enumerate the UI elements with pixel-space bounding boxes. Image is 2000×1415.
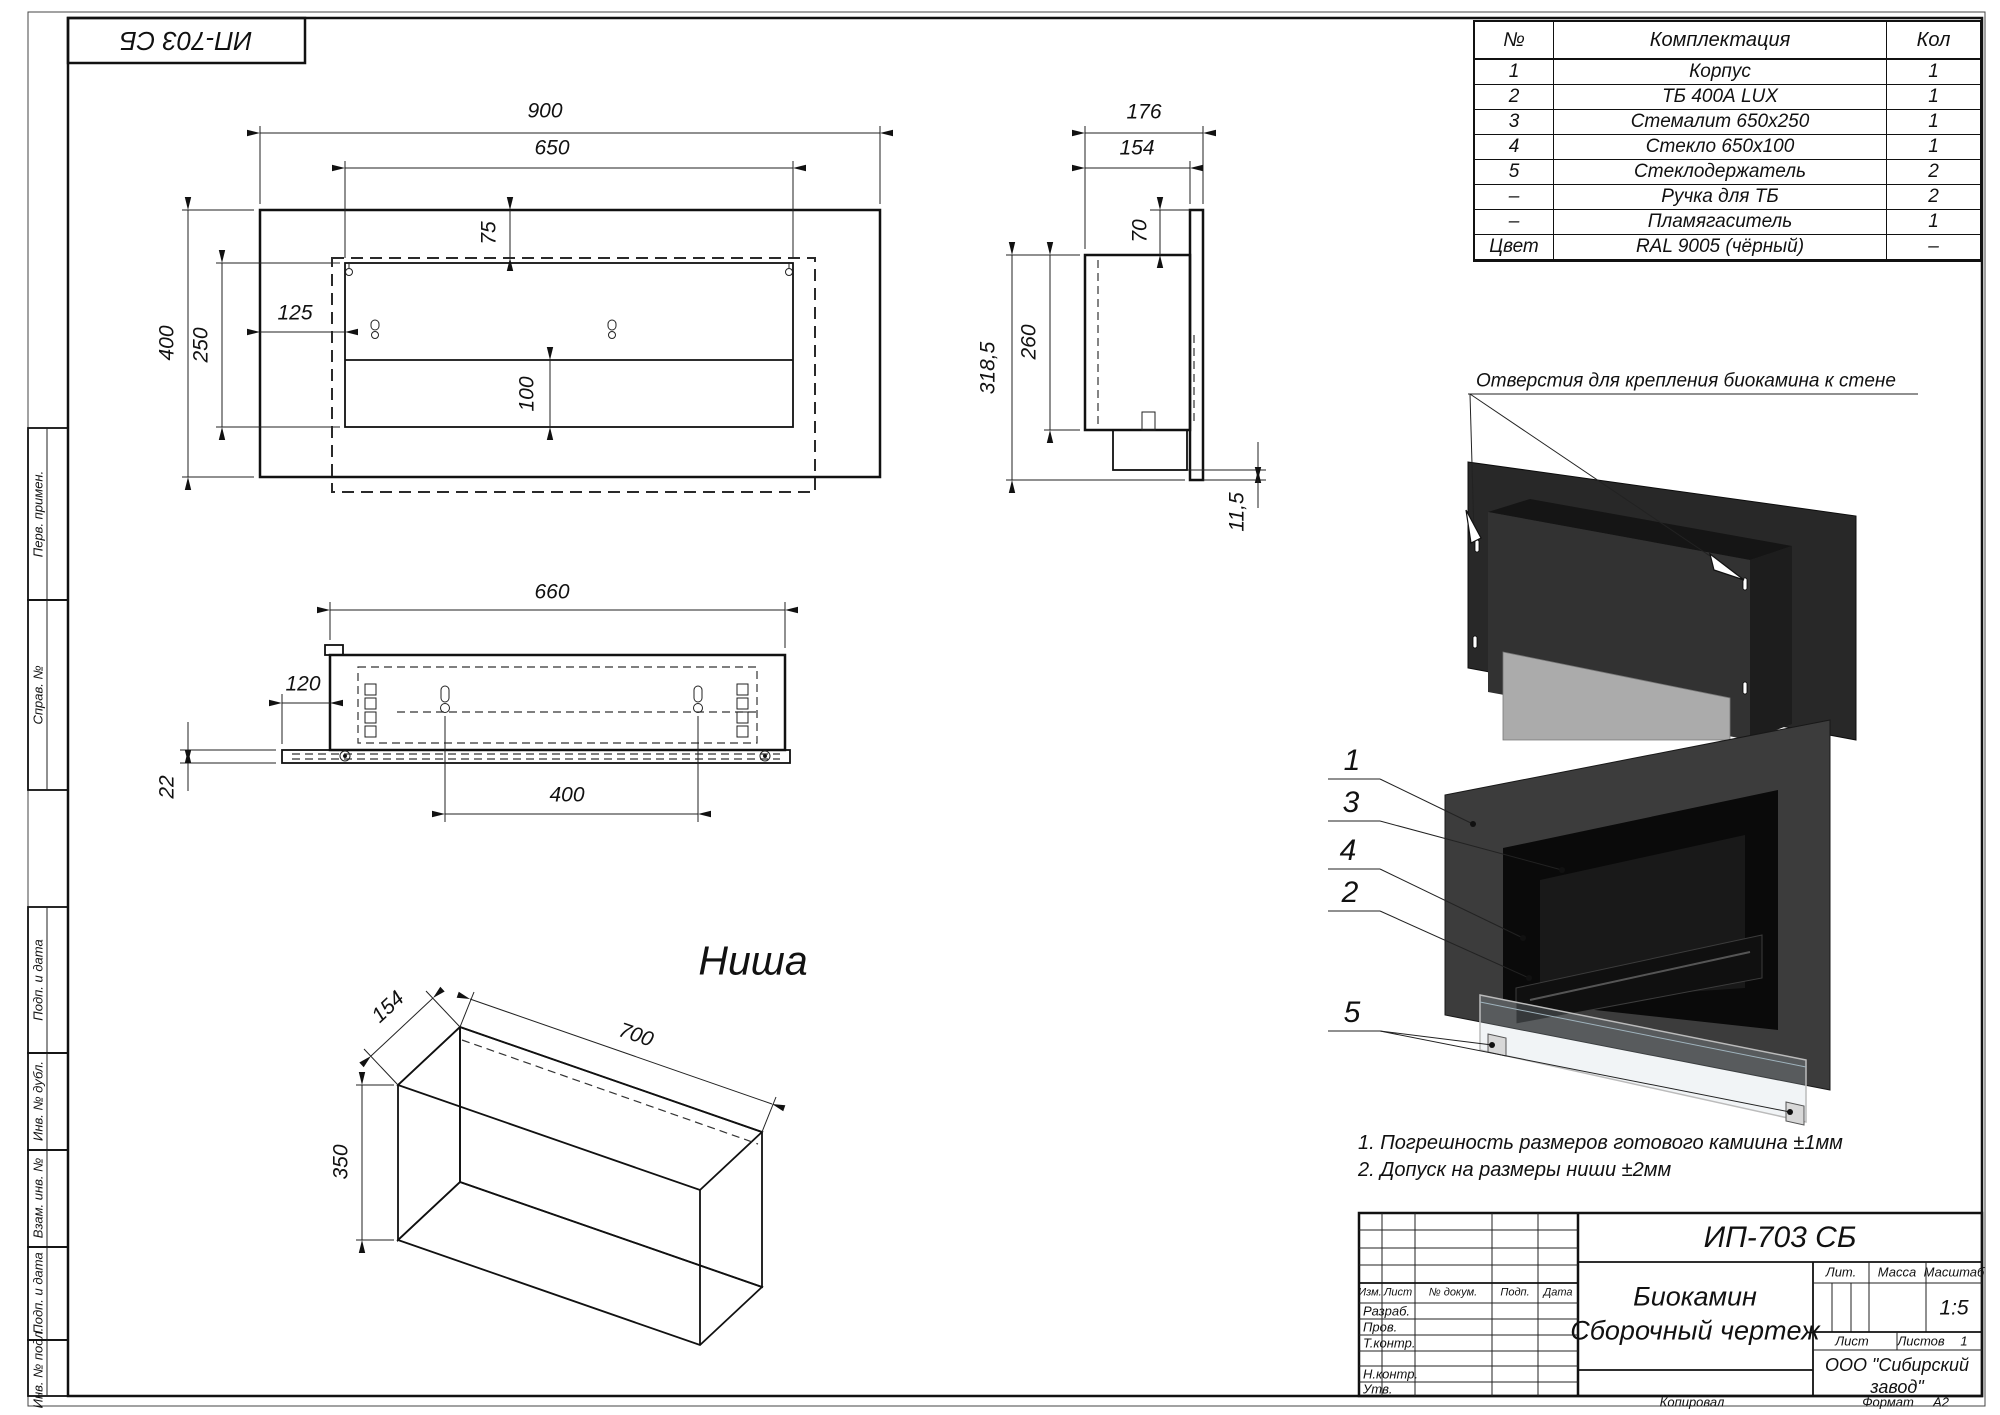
title-block-lit-label: Лит. bbox=[1826, 1266, 1856, 1279]
table-cell: 2 bbox=[1887, 185, 1980, 210]
callout-4: 4 bbox=[1340, 836, 1357, 866]
note-tolerance-niche: 2. Допуск на размеры ниши ±2мм bbox=[1358, 1157, 1843, 1184]
render-rear-view bbox=[1466, 394, 1918, 740]
margin-label-inv-dubl: Инв. № дубл. bbox=[32, 1061, 45, 1141]
table-cell: Стемалит 650х250 bbox=[1554, 110, 1887, 135]
callout-3: 3 bbox=[1343, 788, 1360, 818]
table-cell: 2 bbox=[1887, 160, 1980, 185]
stamp-format-value: А2 bbox=[1933, 1396, 1949, 1409]
dim-side-top-offset: 70 bbox=[1130, 219, 1151, 242]
niche-view bbox=[356, 991, 776, 1345]
stamp-format-label: Формат bbox=[1862, 1396, 1914, 1409]
dim-side-depth: 176 bbox=[1126, 102, 1161, 123]
margin-label-inv-podl: Инв. № подл. bbox=[32, 1328, 45, 1409]
table-cell: Корпус bbox=[1554, 60, 1887, 85]
title-block-scale-label: Масштаб bbox=[1924, 1266, 1985, 1279]
title-block-col-data: Дата bbox=[1543, 1288, 1572, 1299]
table-cell: 5 bbox=[1475, 160, 1554, 185]
table-cell: – bbox=[1475, 210, 1554, 235]
title-block-sheet-label: Лист bbox=[1835, 1335, 1868, 1348]
title-block-sheets-value: 1 bbox=[1960, 1335, 1967, 1348]
stamp-copied: Копировал bbox=[1660, 1396, 1725, 1409]
table-cell: 1 bbox=[1887, 110, 1980, 135]
dim-bottom-plate-thickness: 22 bbox=[157, 775, 178, 798]
title-block-row-prov: Пров. bbox=[1363, 1321, 1397, 1334]
table-cell: – bbox=[1475, 185, 1554, 210]
table-cell: Стеклодержатель bbox=[1554, 160, 1887, 185]
margin-label-podp-data-2: Подп. и дата bbox=[32, 1252, 45, 1333]
table-cell: Ручка для ТБ bbox=[1554, 185, 1887, 210]
dim-front-height: 400 bbox=[157, 325, 178, 360]
table-cell: Цвет bbox=[1475, 235, 1554, 260]
title-block-row-utv: Утв. bbox=[1363, 1383, 1393, 1396]
niche-title: Ниша bbox=[698, 941, 807, 982]
table-cell: – bbox=[1887, 235, 1980, 260]
bottom-view bbox=[180, 602, 790, 822]
drawing-sheet: .thick{stroke:#111;stroke-width:2.5;fill… bbox=[0, 0, 2000, 1415]
table-cell: 1 bbox=[1887, 85, 1980, 110]
dim-side-bottom-offset: 11,5 bbox=[1227, 492, 1248, 531]
title-block-doc-type: Сборочный чертеж bbox=[1570, 1318, 1820, 1345]
title-block-doc-number: ИП-703 СБ bbox=[1704, 1223, 1857, 1253]
dim-side-total-height: 318,5 bbox=[978, 342, 999, 395]
title-block-scale-value: 1:5 bbox=[1939, 1298, 1968, 1319]
callout-1: 1 bbox=[1344, 746, 1361, 776]
dim-front-glass-height: 100 bbox=[517, 376, 538, 411]
title-block-sheets-label: Листов bbox=[1897, 1335, 1944, 1348]
title-block-row-razrab: Разраб. bbox=[1363, 1305, 1410, 1318]
table-cell: 4 bbox=[1475, 135, 1554, 160]
table-cell: Пламягаситель bbox=[1554, 210, 1887, 235]
table-cell: 3 bbox=[1475, 110, 1554, 135]
parts-table: № Комплектация Кол 1 Корпус 1 2 ТБ 400А … bbox=[1473, 20, 1982, 262]
table-cell: 1 bbox=[1887, 210, 1980, 235]
margin-label-sprav-no: Справ. № bbox=[32, 665, 45, 724]
dim-side-body-depth: 154 bbox=[1119, 138, 1154, 159]
title-block-row-nkontr: Н.контр. bbox=[1363, 1368, 1418, 1381]
title-block-col-list: Лист bbox=[1384, 1288, 1412, 1299]
margin-label-podp-data-1: Подп. и дата bbox=[32, 939, 45, 1020]
note-tolerance-fireplace: 1. Погрешность размеров готового камиина… bbox=[1358, 1130, 1843, 1157]
title-block-col-izm: Изм. bbox=[1358, 1288, 1381, 1299]
margin-label-perv-primen: Перв. примен. bbox=[32, 471, 45, 557]
margin-label-vzam-inv: Взам. инв. № bbox=[32, 1158, 45, 1238]
dim-niche-height: 350 bbox=[331, 1144, 352, 1179]
title-block-col-podp: Подп. bbox=[1500, 1288, 1529, 1299]
title-block-mass-label: Масса bbox=[1878, 1266, 1916, 1279]
dim-front-opening-height: 250 bbox=[191, 327, 212, 362]
dim-side-body-height: 260 bbox=[1019, 324, 1040, 359]
callout-2: 2 bbox=[1342, 878, 1359, 908]
doc-number-mirrored: ИП-703 СБ bbox=[120, 28, 252, 54]
dim-bottom-mount-spacing: 400 bbox=[549, 785, 584, 806]
parts-col-name: Комплектация bbox=[1554, 22, 1887, 60]
side-view bbox=[1006, 126, 1266, 508]
title-block-company-line2: завод" bbox=[1870, 1378, 1924, 1396]
title-block-company-line1: ООО "Сибирский bbox=[1825, 1356, 1969, 1374]
table-cell: 1 bbox=[1887, 135, 1980, 160]
dim-front-width: 900 bbox=[527, 101, 562, 122]
table-cell: ТБ 400А LUX bbox=[1554, 85, 1887, 110]
title-block-row-tkontr: Т.контр. bbox=[1363, 1337, 1415, 1350]
parts-col-qty: Кол bbox=[1887, 22, 1980, 60]
dim-front-opening-width: 650 bbox=[534, 138, 569, 159]
dim-bottom-side-offset: 120 bbox=[285, 674, 320, 695]
table-cell: 1 bbox=[1887, 60, 1980, 85]
dim-front-top-offset: 75 bbox=[479, 221, 500, 244]
title-block-col-doc: № докум. bbox=[1429, 1288, 1477, 1299]
table-cell: RAL 9005 (чёрный) bbox=[1554, 235, 1887, 260]
table-cell: 2 bbox=[1475, 85, 1554, 110]
dim-front-side-offset: 125 bbox=[277, 303, 312, 324]
technical-notes: 1. Погрешность размеров готового камиина… bbox=[1358, 1130, 1843, 1184]
parts-col-number: № bbox=[1475, 22, 1554, 60]
dim-bottom-body-width: 660 bbox=[534, 582, 569, 603]
table-cell: Стекло 650х100 bbox=[1554, 135, 1887, 160]
title-block-product-name: Биокамин bbox=[1633, 1284, 1757, 1311]
mount-holes-note: Отверстия для крепления биокамина к стен… bbox=[1476, 372, 1896, 391]
table-cell: 1 bbox=[1475, 60, 1554, 85]
callout-5: 5 bbox=[1344, 998, 1361, 1028]
render-front-view bbox=[1328, 720, 1830, 1125]
